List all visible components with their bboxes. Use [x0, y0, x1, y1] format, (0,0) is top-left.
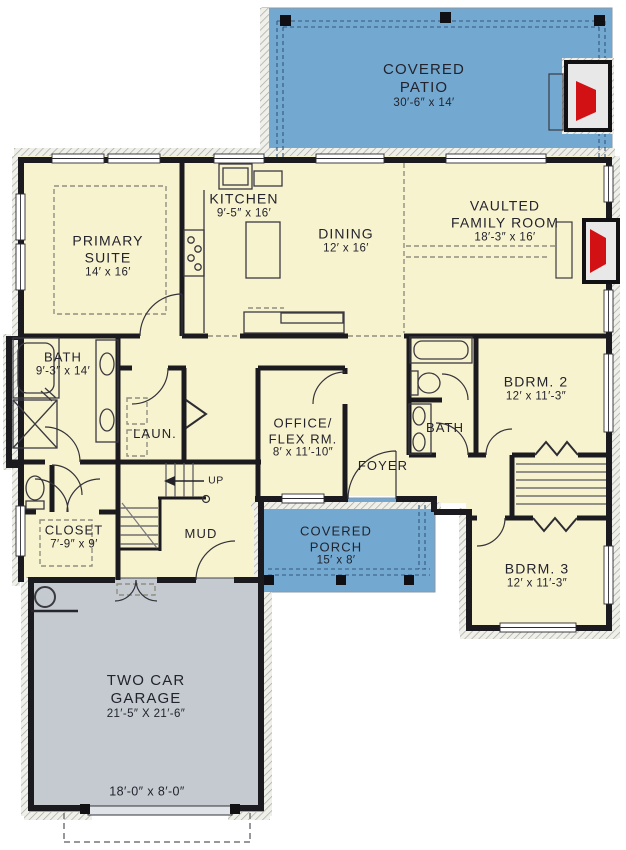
room-name: BDRM. 2	[504, 374, 569, 391]
floor-fills	[6, 8, 612, 811]
room-name: DINING	[318, 226, 374, 243]
label-kitchen: KITCHEN 9′-5″ x 16′	[209, 191, 278, 222]
label-primary-bath: BATH 9′-3″ x 14′	[36, 349, 90, 378]
room-dims: 9′-5″ x 16′	[209, 208, 278, 222]
label-family-room: VAULTED FAMILY ROOM 18′-3″ x 16′	[451, 197, 559, 244]
label-laundry: LAUN.	[133, 426, 177, 442]
window	[500, 623, 576, 632]
window	[214, 154, 264, 163]
room-dims: 7′-9″ x 9′	[45, 538, 104, 552]
room-dims: 12′ x 16′	[318, 243, 374, 257]
room-name: PORCH	[300, 539, 372, 555]
room-name: VAULTED	[451, 197, 559, 214]
window	[604, 290, 613, 332]
room-dims: 12′ x 11′-3″	[505, 578, 570, 592]
stairs-direction: UP	[208, 475, 224, 488]
room-name: PRIMARY	[72, 232, 143, 249]
window	[16, 244, 25, 290]
room-name: GARAGE	[107, 690, 186, 708]
label-garage: TWO CAR GARAGE 21′-5″ X 21′-6″	[107, 672, 186, 722]
label-office-flex: OFFICE/ FLEX RM. 8′ x 11′-10″	[269, 416, 338, 461]
window	[16, 506, 25, 556]
room-name: COVERED	[383, 61, 465, 79]
room-name: COVERED	[300, 524, 372, 540]
room-name: BATH	[426, 420, 464, 436]
room-name: CLOSET	[45, 522, 104, 538]
room-name: BDRM. 3	[505, 561, 570, 578]
label-primary-suite: PRIMARY SUITE 14′ x 16′	[72, 232, 143, 279]
label-closet: CLOSET 7′-9″ x 9′	[45, 522, 104, 551]
room-name: FAMILY ROOM	[451, 214, 559, 231]
garage-door-jamb	[230, 804, 240, 814]
window	[52, 154, 104, 163]
garage-door-dims: 18′-0″ x 8′-0″	[109, 785, 184, 800]
label-covered-patio: COVERED PATIO 30′-6″ x 14′	[383, 61, 465, 111]
room-dims: 8′ x 11′-10″	[269, 447, 338, 461]
patio-post	[594, 15, 605, 26]
room-dims: 15′ x 8′	[300, 555, 372, 569]
room-name: MUD	[185, 526, 218, 542]
room-dims: 30′-6″ x 14′	[383, 97, 465, 111]
label-mud-room: MUD	[185, 526, 218, 542]
room-name: SUITE	[72, 249, 143, 266]
window	[16, 194, 25, 240]
label-garage-door-size: 18′-0″ x 8′-0″	[109, 785, 184, 800]
room-name: FLEX RM.	[269, 431, 338, 447]
window	[316, 154, 384, 163]
label-bedroom-2: BDRM. 2 12′ x 11′-3″	[504, 374, 569, 405]
room-name: LAUN.	[133, 426, 177, 442]
room-name: PATIO	[383, 79, 465, 97]
garage-door	[88, 806, 232, 815]
window	[604, 546, 613, 604]
window	[604, 166, 613, 202]
room-name: BATH	[36, 349, 90, 365]
room-name: TWO CAR	[107, 672, 186, 690]
patio-post	[440, 12, 451, 23]
porch-post	[404, 575, 414, 585]
room-dims: 21′-5″ X 21′-6″	[107, 708, 186, 722]
window	[282, 494, 324, 503]
window	[108, 154, 160, 163]
room-dims: 9′-3″ x 14′	[36, 365, 90, 379]
label-stairs-up: UP	[208, 475, 224, 488]
room-dims: 14′ x 16′	[72, 266, 143, 280]
room-name: KITCHEN	[209, 191, 278, 208]
window	[604, 354, 613, 432]
room-name: FOYER	[358, 458, 408, 474]
room-dims: 18′-3″ x 16′	[451, 231, 559, 245]
floor-plan-page: COVERED PATIO 30′-6″ x 14′ KITCHEN 9′-5″…	[0, 0, 626, 850]
room-dims: 12′ x 11′-3″	[504, 391, 569, 405]
porch-post	[264, 575, 274, 585]
label-hall-bath: BATH	[426, 420, 464, 436]
porch-post	[336, 575, 346, 585]
label-dining: DINING 12′ x 16′	[318, 226, 374, 257]
patio-post	[280, 15, 291, 26]
room-name: OFFICE/	[269, 416, 338, 432]
label-bedroom-3: BDRM. 3 12′ x 11′-3″	[505, 561, 570, 592]
label-foyer: FOYER	[358, 458, 408, 474]
window	[446, 154, 546, 163]
label-covered-porch: COVERED PORCH 15′ x 8′	[300, 524, 372, 569]
garage-door-jamb	[80, 804, 90, 814]
